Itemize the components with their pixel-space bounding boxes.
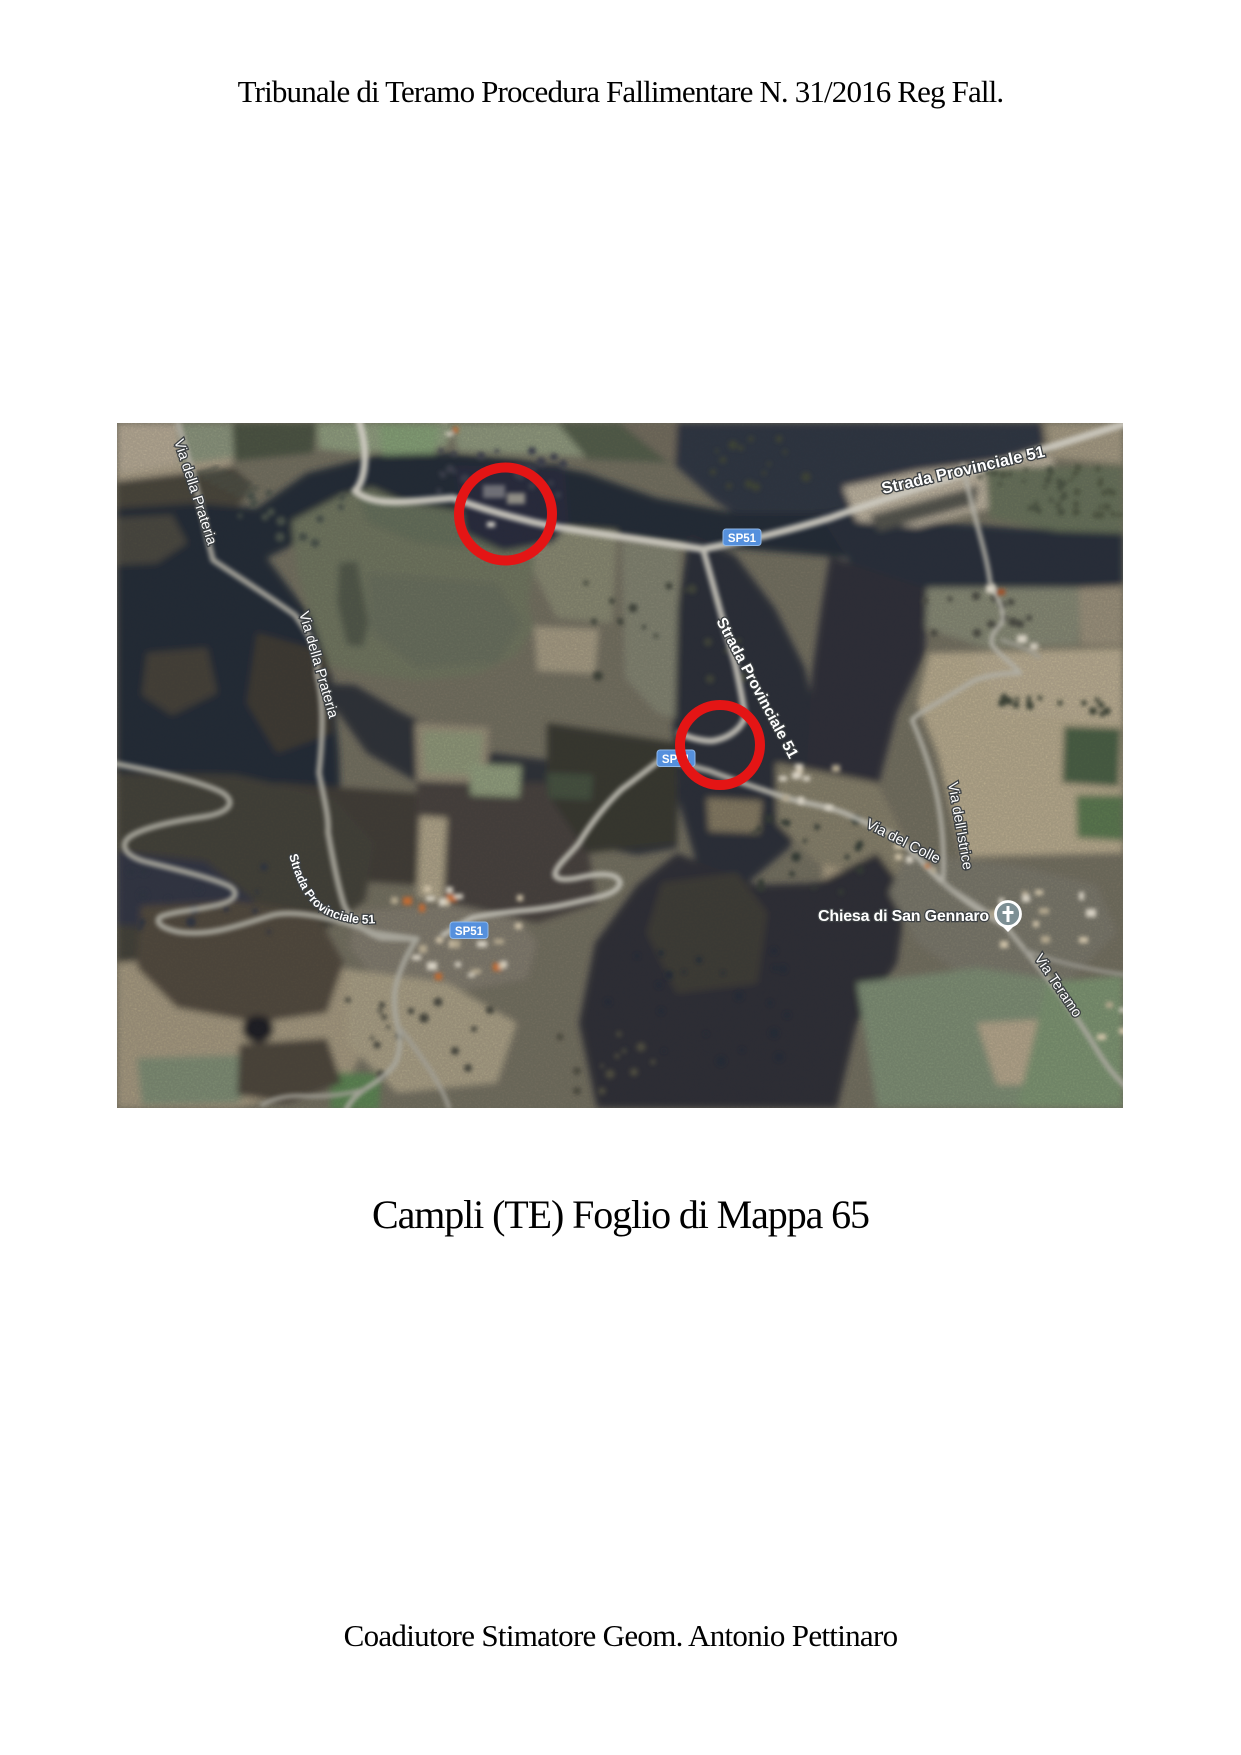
- svg-text:SP51: SP51: [455, 926, 484, 938]
- svg-text:SP51: SP51: [728, 533, 757, 545]
- svg-text:Chiesa di San Gennaro: Chiesa di San Gennaro: [818, 908, 989, 925]
